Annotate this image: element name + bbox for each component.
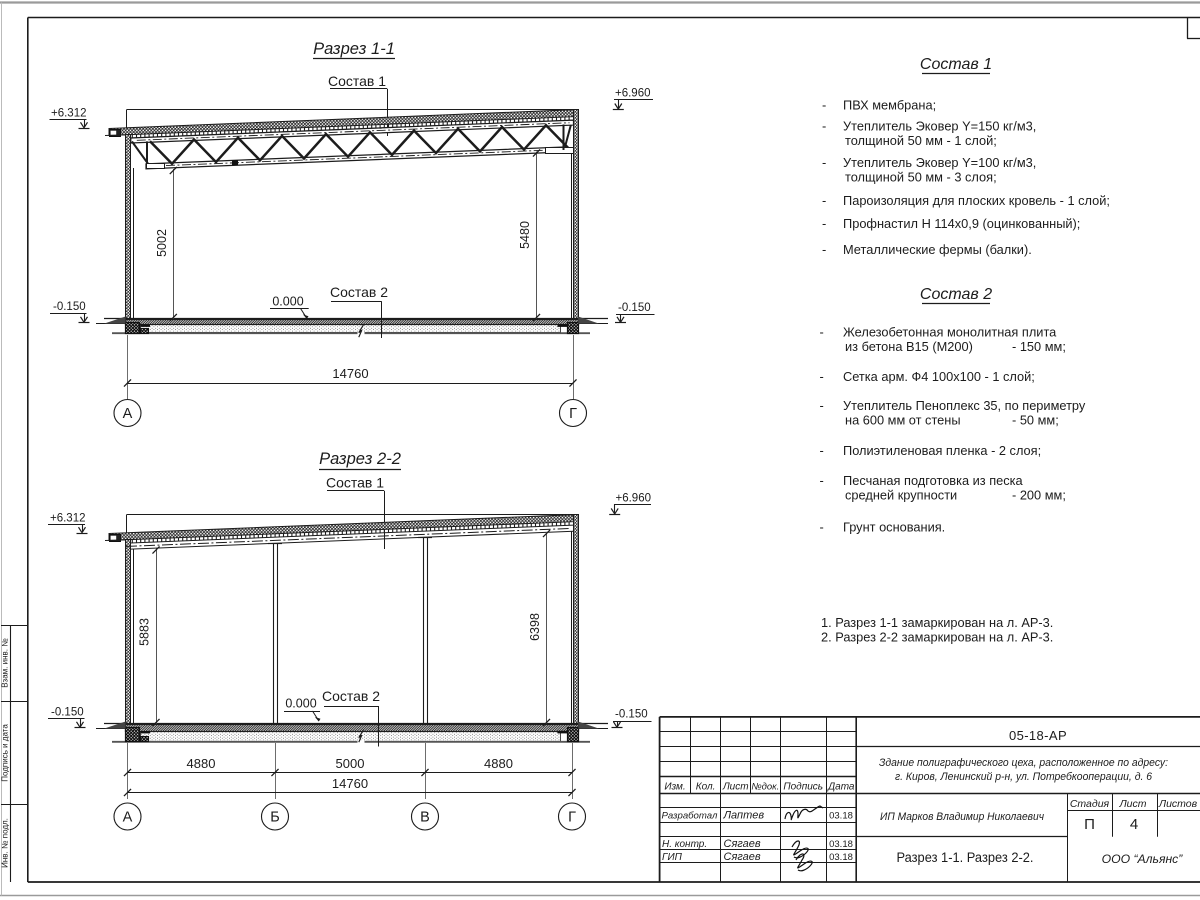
svg-text:Г: Г	[569, 406, 577, 422]
svg-text:0.000: 0.000	[285, 697, 316, 711]
svg-text:-: -	[820, 325, 824, 340]
svg-text:толщиной 50 мм - 3 слоя;: толщиной 50 мм - 3 слоя;	[845, 170, 997, 185]
svg-text:-0.150: -0.150	[618, 302, 651, 314]
svg-text:Утеплитель Пеноплекс 35, по пе: Утеплитель Пеноплекс 35, по периметру	[843, 398, 1086, 413]
svg-text:средней крупности: средней крупности	[845, 488, 957, 503]
svg-text:Здание полиграфического цеха,: Здание полиграфического цеха, расположен…	[879, 757, 1168, 769]
svg-text:Песчаная подготовка из песка: Песчаная подготовка из песка	[843, 473, 1024, 488]
svg-text:Металлические фермы (балки).: Металлические фермы (балки).	[843, 242, 1032, 257]
svg-text:Разрез 2-2: Разрез 2-2	[319, 450, 401, 468]
svg-text:03.18: 03.18	[829, 839, 853, 850]
svg-text:В: В	[420, 810, 430, 826]
svg-text:5002: 5002	[155, 229, 169, 257]
svg-text:Пароизоляция для плоских крове: Пароизоляция для плоских кровель - 1 сло…	[843, 193, 1110, 208]
svg-text:Б: Б	[270, 810, 280, 826]
svg-text:Полиэтиленовая пленка - 2 слоя: Полиэтиленовая пленка - 2 слоя;	[843, 443, 1041, 458]
svg-text:-: -	[820, 443, 824, 458]
svg-text:-0.150: -0.150	[51, 707, 84, 719]
svg-text:Стадия: Стадия	[1070, 798, 1110, 810]
svg-text:Инв. № подл.: Инв. № подл.	[1, 818, 10, 868]
svg-text:ИП Марков Владимир Николаевич: ИП Марков Владимир Николаевич	[880, 811, 1044, 823]
svg-text:-: -	[822, 119, 826, 134]
svg-text:Железобетонная монолитная пли: Железобетонная монолитная плита	[843, 325, 1057, 340]
svg-text:Листов: Листов	[1158, 798, 1198, 810]
svg-text:А: А	[123, 406, 133, 422]
svg-text:4: 4	[1130, 816, 1138, 833]
svg-text:Грунт основания.: Грунт основания.	[843, 520, 945, 535]
svg-text:Сягаев: Сягаев	[724, 851, 761, 863]
svg-text:из бетона В15 (М200): из бетона В15 (М200)	[845, 339, 973, 354]
svg-text:+6.960: +6.960	[615, 88, 651, 100]
svg-text:-: -	[822, 155, 826, 170]
svg-text:Профнастил Н 114х0,9 (оцинкова: Профнастил Н 114х0,9 (оцинкованный);	[843, 216, 1080, 231]
svg-text:ООО “Альянс”: ООО “Альянс”	[1102, 852, 1184, 866]
svg-text:- 200 мм;: - 200 мм;	[1012, 488, 1066, 503]
svg-text:03.18: 03.18	[829, 852, 853, 863]
svg-text:П: П	[1084, 816, 1095, 833]
svg-text:14760: 14760	[332, 366, 368, 381]
svg-text:4880: 4880	[484, 756, 513, 771]
svg-text:-: -	[822, 98, 826, 113]
svg-text:- 150 мм;: - 150 мм;	[1012, 339, 1066, 354]
svg-text:Состав 1: Состав 1	[920, 56, 992, 73]
svg-text:Состав 2: Состав 2	[920, 286, 992, 303]
svg-text:-: -	[822, 193, 826, 208]
svg-text:Состав 2: Состав 2	[322, 688, 380, 704]
svg-text:Изм.: Изм.	[664, 782, 685, 793]
svg-text:5883: 5883	[138, 618, 152, 646]
svg-text:Сягаев: Сягаев	[724, 838, 761, 850]
svg-text:-: -	[822, 242, 826, 257]
svg-text:А: А	[123, 810, 133, 826]
svg-text:Подпись и дата: Подпись и дата	[1, 724, 10, 782]
svg-text:на 600 мм от стены: на 600 мм от стены	[845, 413, 961, 428]
svg-text:05-18-АР: 05-18-АР	[1009, 728, 1067, 743]
svg-text:Г: Г	[568, 810, 576, 826]
svg-text:-: -	[820, 398, 824, 413]
svg-text:Утеплитель Эковер Y=100 кг/м3,: Утеплитель Эковер Y=100 кг/м3,	[843, 155, 1036, 170]
svg-text:Лаптев: Лаптев	[723, 810, 765, 822]
svg-text:Состав 1: Состав 1	[328, 73, 386, 89]
svg-text:5000: 5000	[336, 756, 365, 771]
svg-text:Разработал: Разработал	[662, 811, 718, 822]
svg-text:+6.312: +6.312	[50, 513, 86, 525]
svg-text:Состав 1: Состав 1	[326, 475, 384, 491]
svg-text:03.18: 03.18	[829, 811, 853, 822]
svg-text:-: -	[822, 216, 826, 231]
svg-text:6398: 6398	[528, 613, 542, 641]
svg-text:-: -	[820, 473, 824, 488]
svg-text:Н. контр.: Н. контр.	[662, 839, 707, 850]
svg-text:Подпись: Подпись	[783, 782, 823, 793]
svg-text:Лист: Лист	[1118, 798, 1146, 810]
svg-text:Разрез 1-1: Разрез 1-1	[313, 40, 395, 58]
svg-text:4880: 4880	[187, 756, 216, 771]
svg-text:5480: 5480	[518, 221, 532, 249]
svg-text:Разрез 1-1. Разрез 2-2.: Разрез 1-1. Разрез 2-2.	[897, 850, 1034, 865]
svg-text:№док.: №док.	[751, 782, 779, 793]
svg-text:-0.150: -0.150	[53, 301, 86, 313]
svg-text:14760: 14760	[332, 776, 368, 791]
svg-text:0.000: 0.000	[272, 295, 303, 309]
svg-text:+6.312: +6.312	[51, 108, 87, 120]
svg-text:-: -	[820, 520, 824, 535]
svg-text:ПВХ мембрана;: ПВХ мембрана;	[843, 98, 936, 113]
svg-text:Лист: Лист	[722, 782, 749, 793]
svg-text:Кол.: Кол.	[696, 782, 716, 793]
svg-text:+6.960: +6.960	[616, 493, 652, 505]
svg-text:Сетка арм. Ф4 100х100 - 1 слой: Сетка арм. Ф4 100х100 - 1 слой;	[843, 369, 1035, 384]
svg-text:-0.150: -0.150	[615, 709, 648, 721]
svg-text:толщиной 50 мм - 1 слой;: толщиной 50 мм - 1 слой;	[845, 133, 997, 148]
svg-text:2. Разрез 2-2 замаркирован на: 2. Разрез 2-2 замаркирован на л. АР-3.	[821, 630, 1053, 645]
svg-text:Состав 2: Состав 2	[330, 284, 388, 300]
svg-text:ГИП: ГИП	[662, 852, 683, 863]
svg-text:Дата: Дата	[827, 782, 855, 793]
svg-text:- 50 мм;: - 50 мм;	[1012, 413, 1059, 428]
svg-text:Взам. инв. №: Взам. инв. №	[1, 638, 10, 688]
svg-text:Утеплитель Эковер Y=150 кг/м3,: Утеплитель Эковер Y=150 кг/м3,	[843, 119, 1036, 134]
svg-text:1. Разрез 1-1 замаркирован на: 1. Разрез 1-1 замаркирован на л. АР-3.	[821, 615, 1053, 630]
svg-text:-: -	[820, 369, 824, 384]
svg-text:г. Киров, Ленинский р-н, ул.: г. Киров, Ленинский р-н, ул. Потребкоопе…	[895, 771, 1153, 783]
